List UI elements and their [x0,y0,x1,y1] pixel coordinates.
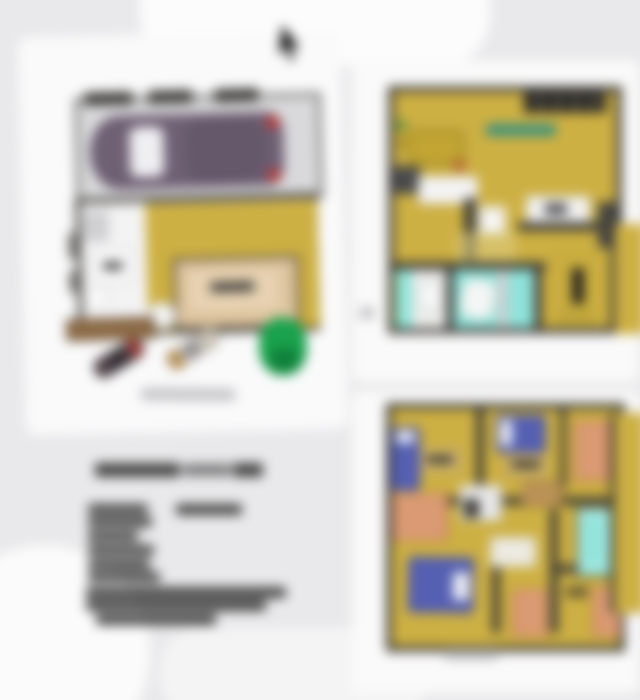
plant-dot [396,120,407,131]
north-mark-smudge [360,307,374,319]
car-roof-shade [184,116,268,184]
kitchen-counter-dark [394,166,420,194]
entrance-door [572,268,584,304]
interior-wall [550,509,558,633]
washing-machine [419,282,441,310]
site-caption-smudge [140,388,236,402]
pillow [396,431,414,443]
dimension-text-smudge [68,233,78,259]
room-label-smudge [511,460,541,469]
site-plan [25,46,345,424]
desk-item [545,203,567,215]
spec-row-value-smudge [176,504,242,515]
car-taillight [267,169,280,180]
spec-title-smudge [183,464,231,476]
bathroom-2f [576,507,612,577]
bathroom [454,270,498,328]
ldk-label-smudge [486,124,556,136]
screenshot-root [0,0,640,700]
interior-wall [446,270,454,328]
bed [392,427,420,491]
car-top-view [89,111,285,190]
shrub [258,317,308,376]
floorplan-1f-card [352,60,640,382]
washroom [396,270,412,328]
rug-label-smudge [210,281,254,292]
dimension-text-smudge [69,271,79,293]
dresser [574,421,610,481]
car-taillight [266,117,279,128]
appliance [83,212,108,241]
bathtub [457,276,498,323]
balcony-strip-1f [610,224,640,334]
rug [522,481,562,507]
spec-note-smudge [86,600,266,611]
blurred-scene [0,0,640,700]
stairs [460,485,502,521]
counter [86,289,106,306]
entrance-hall [552,248,600,328]
interior-wall [534,270,542,328]
bathtub-edge [581,512,605,570]
room-label-smudge [426,455,454,464]
dimension-dash [84,91,132,105]
spec-note-smudge [96,614,216,625]
spec-row-label-smudge [88,517,152,527]
dimension-dash [148,90,192,104]
chest [392,493,448,541]
car-windshield [129,127,164,178]
stair-void [464,499,479,518]
desk [526,196,590,224]
spec-row-label-smudge [88,531,138,541]
desk [420,447,462,473]
laundry-area [412,270,446,328]
toilet-fixture [485,212,501,232]
dimension-dash [214,88,258,102]
interior-wall [560,409,566,489]
mouse-cursor-icon [274,22,305,65]
spec-row-label-smudge [88,559,150,569]
floorplan-2f [386,403,625,652]
decor-dot [454,160,465,171]
ldk-floor [145,200,320,331]
entrance-step [558,310,594,322]
dining-chair [398,136,410,148]
pillow [500,420,512,446]
dresser [512,589,548,637]
hallway-light [456,232,516,264]
floorplan-2f-card [352,391,640,693]
scale-smudge [444,649,498,660]
bed [496,415,546,453]
spec-note-smudge [86,587,286,598]
balcony-strip-2f [610,413,640,613]
interior-wall [492,567,500,633]
vanity [92,249,133,282]
pillow [453,572,469,600]
desk [504,453,548,477]
spec-row-label-smudge [88,545,154,555]
interior-wall [394,262,546,270]
closet-white [490,537,536,567]
floorplan-1f [388,86,622,334]
room-label-smudge [566,587,588,597]
vanity-label-smudge [103,262,123,271]
spec-row-label-smudge [88,572,160,582]
bed [408,556,475,613]
kitchen-area [80,202,149,332]
counter-wall [518,222,610,231]
washroom-2 [508,270,534,328]
corridor-strip [498,270,508,328]
spec-row-label-smudge [88,504,148,514]
staircase-dark [524,92,606,113]
spec-title-smudge [233,463,263,477]
spec-title-smudge [95,463,180,477]
